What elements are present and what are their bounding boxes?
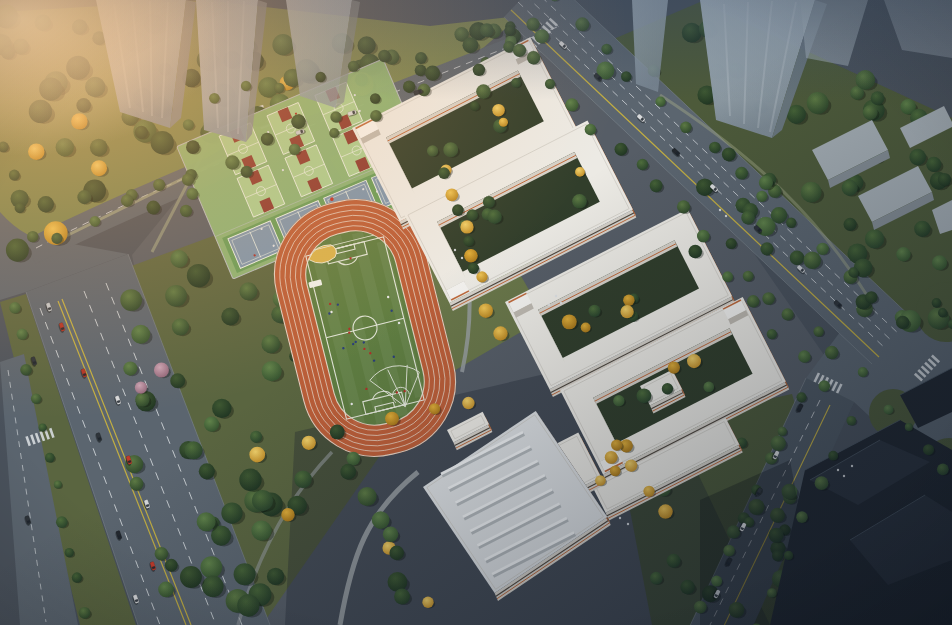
- scene-canvas: [0, 0, 952, 625]
- lighting-overlays: [0, 0, 952, 625]
- campus-aerial-rendering: [0, 0, 952, 625]
- vignette: [0, 0, 952, 625]
